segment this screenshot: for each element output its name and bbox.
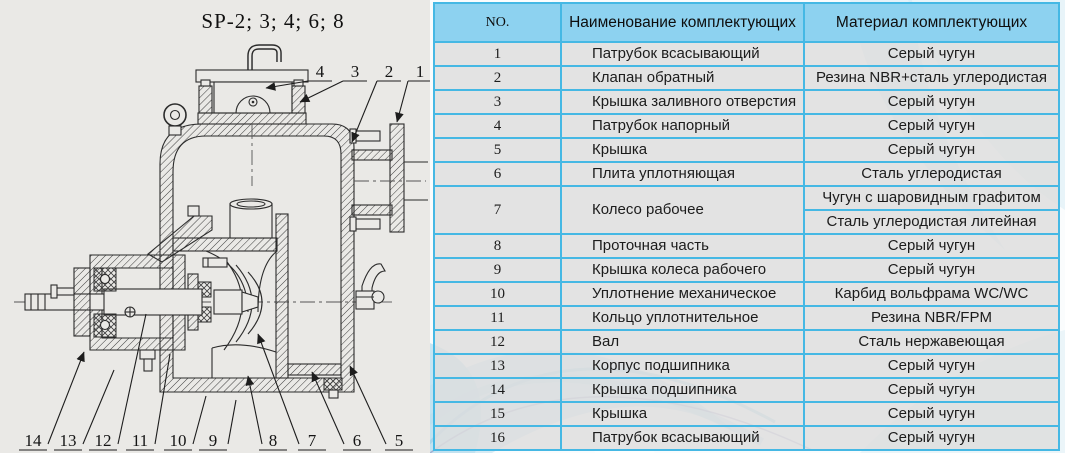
pump-cross-section-drawing: SP-2; 3; 4; 6; 8 xyxy=(0,0,430,453)
material-cell: Серый чугун xyxy=(803,89,1058,113)
table-row: 10Уплотнение механическоеКарбид вольфрам… xyxy=(433,281,1058,305)
no-cell: 15 xyxy=(433,401,560,425)
material-cell: Сталь углеродистая xyxy=(803,161,1058,185)
col-header-material: Материал комплектующих xyxy=(803,2,1058,41)
callout-label: 11 xyxy=(132,431,148,450)
name-cell: Плита уплотняющая xyxy=(560,161,803,185)
priming-port xyxy=(196,47,308,186)
screenshot-root: SP-2; 3; 4; 6; 8 xyxy=(0,0,1065,453)
no-cell: 10 xyxy=(433,281,560,305)
col-header-no: NO. xyxy=(433,2,560,41)
no-cell: 13 xyxy=(433,353,560,377)
no-cell: 9 xyxy=(433,257,560,281)
name-cell: Крышка xyxy=(560,401,803,425)
no-cell: 6 xyxy=(433,161,560,185)
callout-label: 3 xyxy=(351,62,360,81)
name-cell: Патрубок напорный xyxy=(560,113,803,137)
table-row: 4Патрубок напорныйСерый чугун xyxy=(433,113,1058,137)
callout-label: 14 xyxy=(25,431,43,450)
material-cell: Сталь углеродистая литейная xyxy=(803,209,1058,233)
no-cell: 2 xyxy=(433,65,560,89)
material-cell: Резина NBR+сталь углеродистая xyxy=(803,65,1058,89)
name-cell: Крышка подшипника xyxy=(560,377,803,401)
name-cell: Крышка колеса рабочего xyxy=(560,257,803,281)
material-cell: Серый чугун xyxy=(803,353,1058,377)
name-cell: Корпус подшипника xyxy=(560,353,803,377)
material-cell: Серый чугун xyxy=(803,377,1058,401)
material-cell: Серый чугун xyxy=(803,113,1058,137)
no-cell: 16 xyxy=(433,425,560,449)
callout-label: 13 xyxy=(60,431,77,450)
material-cell: Карбид вольфрама WC/WC xyxy=(803,281,1058,305)
table-row: 1Патрубок всасывающийСерый чугун xyxy=(433,41,1058,65)
table-row: 8Проточная частьСерый чугун xyxy=(433,233,1058,257)
drain-bolt xyxy=(324,378,342,398)
callout-label: 4 xyxy=(316,62,325,81)
bearing-cover xyxy=(74,268,90,336)
valve-lever xyxy=(356,264,385,309)
parts-table-panel: NO. Наименование комплектующих Материал … xyxy=(430,0,1065,453)
table-row: 12ВалСталь нержавеющая xyxy=(433,329,1058,353)
callout-label: 9 xyxy=(209,431,218,450)
material-cell: Чугун с шаровидным графитом xyxy=(803,185,1058,209)
name-cell: Вал xyxy=(560,329,803,353)
name-cell: Патрубок всасывающий xyxy=(560,425,803,449)
table-row: 14Крышка подшипникаСерый чугун xyxy=(433,377,1058,401)
no-cell: 1 xyxy=(433,41,560,65)
no-cell: 8 xyxy=(433,233,560,257)
table-row: 3Крышка заливного отверстияСерый чугун xyxy=(433,89,1058,113)
material-cell: Сталь нержавеющая xyxy=(803,329,1058,353)
no-cell: 4 xyxy=(433,113,560,137)
name-cell: Колесо рабочее xyxy=(560,185,803,233)
callout-label: 8 xyxy=(269,431,278,450)
no-cell: 14 xyxy=(433,377,560,401)
table-row: 9Крышка колеса рабочегоСерый чугун xyxy=(433,257,1058,281)
callout-label: 7 xyxy=(308,431,317,450)
name-cell: Кольцо уплотнительное xyxy=(560,305,803,329)
diagram-title: SP-2; 3; 4; 6; 8 xyxy=(201,9,344,33)
no-cell: 3 xyxy=(433,89,560,113)
material-cell: Серый чугун xyxy=(803,41,1058,65)
name-cell: Проточная часть xyxy=(560,233,803,257)
pump-casing xyxy=(160,124,354,398)
parts-table: NO. Наименование комплектующих Материал … xyxy=(433,2,1060,451)
suction-flange xyxy=(350,124,428,232)
callout-label: 1 xyxy=(416,62,425,81)
material-cell: Серый чугун xyxy=(803,401,1058,425)
material-cell: Резина NBR/FPM xyxy=(803,305,1058,329)
table-row: 7Колесо рабочееЧугун с шаровидным графит… xyxy=(433,185,1058,209)
material-cell: Серый чугун xyxy=(803,233,1058,257)
material-cell: Серый чугун xyxy=(803,137,1058,161)
callout-label: 12 xyxy=(95,431,112,450)
table-row: 6Плита уплотняющаяСталь углеродистая xyxy=(433,161,1058,185)
no-cell: 11 xyxy=(433,305,560,329)
table-row: 2Клапан обратныйРезина NBR+сталь углерод… xyxy=(433,65,1058,89)
material-cell: Серый чугун xyxy=(803,425,1058,449)
name-cell: Клапан обратный xyxy=(560,65,803,89)
no-cell: 7 xyxy=(433,185,560,233)
support-bracket xyxy=(148,206,212,262)
pump-diagram-panel: SP-2; 3; 4; 6; 8 xyxy=(0,0,430,453)
material-cell: Серый чугун xyxy=(803,257,1058,281)
name-cell: Крышка заливного отверстия xyxy=(560,89,803,113)
name-cell: Крышка xyxy=(560,137,803,161)
callout-label: 5 xyxy=(395,431,404,450)
col-header-name: Наименование комплектующих xyxy=(560,2,803,41)
callout-label: 6 xyxy=(353,431,362,450)
name-cell: Уплотнение механическое xyxy=(560,281,803,305)
table-row: 15КрышкаСерый чугун xyxy=(433,401,1058,425)
no-cell: 12 xyxy=(433,329,560,353)
bearing-assembly xyxy=(25,255,202,371)
pump-shaft xyxy=(25,294,107,310)
table-row: 13Корпус подшипникаСерый чугун xyxy=(433,353,1058,377)
impeller xyxy=(214,258,262,350)
callout-label: 2 xyxy=(385,62,394,81)
no-cell: 5 xyxy=(433,137,560,161)
table-row: 5КрышкаСерый чугун xyxy=(433,137,1058,161)
table-row: 16Патрубок всасывающийСерый чугун xyxy=(433,425,1058,449)
table-header-row: NO. Наименование комплектующих Материал … xyxy=(433,2,1058,41)
callout-label: 10 xyxy=(170,431,187,450)
name-cell: Патрубок всасывающий xyxy=(560,41,803,65)
cover-handle xyxy=(250,47,279,70)
table-row: 11Кольцо уплотнительноеРезина NBR/FPM xyxy=(433,305,1058,329)
